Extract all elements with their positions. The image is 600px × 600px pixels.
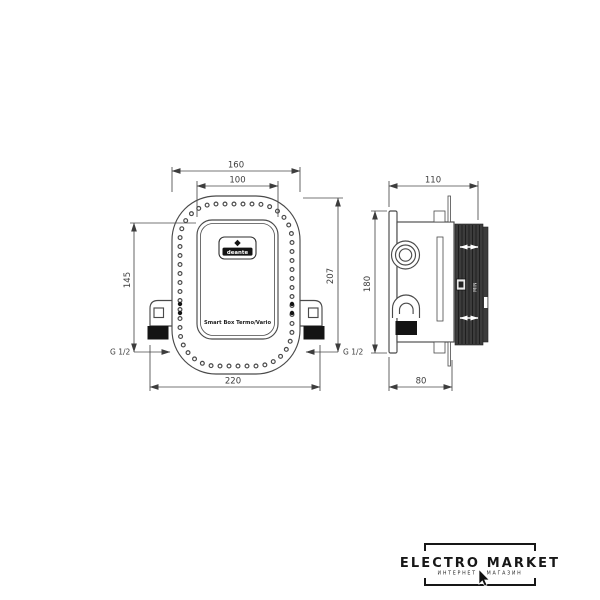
upper-valve-port — [392, 241, 420, 269]
thread-label-right: G 1/2 — [343, 348, 363, 357]
side-top-pin — [448, 196, 451, 222]
side-bottom-pin — [448, 342, 451, 366]
logo-bracket-top — [425, 544, 535, 551]
side-top-tab — [434, 211, 445, 222]
dim-label-180: 180 — [363, 276, 373, 292]
dim-label-160: 160 — [228, 161, 244, 171]
side-bottom-tab — [434, 342, 445, 353]
electro-market-logo: ELECTRO MARKET ИНТЕРНЕТ - МАГАЗИН — [400, 544, 560, 586]
thread-callout-left: G 1/2 — [110, 348, 170, 357]
dimension-body-depth: 80 — [389, 357, 452, 391]
dim-label-110: 110 — [425, 176, 441, 186]
left-bracket — [148, 301, 173, 340]
block-end-strip — [483, 227, 488, 342]
lower-thread-connector — [396, 321, 418, 335]
right-thread-connector — [304, 326, 325, 340]
side-slot — [437, 237, 443, 321]
front-view: deante Smart Box Termo/Vario 160 100 — [110, 161, 363, 392]
technical-drawing-page: deante Smart Box Termo/Vario 160 100 — [0, 0, 600, 600]
dim-label-145: 145 — [123, 272, 133, 288]
marker-glyph — [459, 282, 464, 288]
left-thread-connector — [148, 326, 169, 340]
brand-plaque: deante — [219, 237, 256, 259]
side-view: MIN 110 180 80 — [363, 176, 488, 392]
brand-logo-text: deante — [227, 250, 249, 256]
dim-label-100: 100 — [229, 176, 245, 186]
dimension-height: 180 — [363, 211, 387, 353]
thread-label-left: G 1/2 — [110, 348, 130, 357]
dimension-depth: 110 — [389, 176, 478, 221]
dim-label-207: 207 — [326, 268, 336, 284]
block-end-notch — [484, 297, 488, 308]
thread-callout-right: G 1/2 — [306, 348, 363, 357]
lower-valve — [393, 295, 420, 335]
right-bracket — [300, 301, 325, 340]
product-label: Smart Box Termo/Vario — [204, 320, 272, 326]
logo-title: ELECTRO MARKET — [400, 556, 560, 571]
installation-drawing: deante Smart Box Termo/Vario 160 100 — [0, 0, 600, 600]
min-depth-text: MIN — [473, 282, 479, 292]
dim-label-220: 220 — [225, 377, 241, 387]
dim-label-80: 80 — [416, 377, 427, 387]
ribbed-depth-block: MIN — [455, 224, 488, 345]
